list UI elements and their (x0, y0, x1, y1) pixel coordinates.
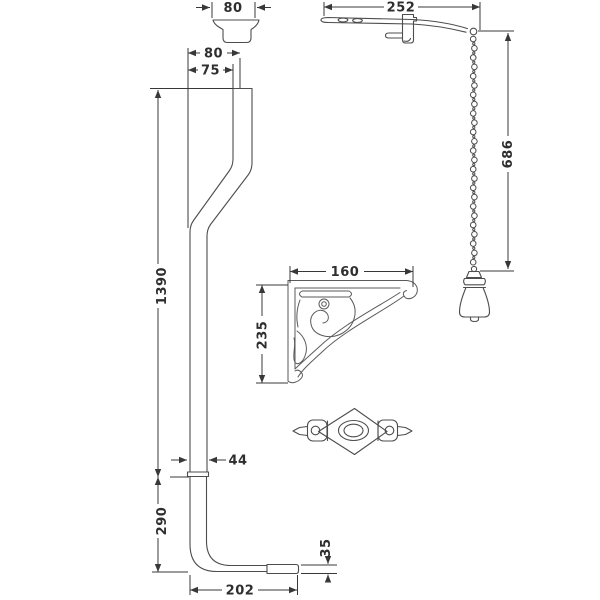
diamond-escutcheon-plate (293, 409, 412, 455)
cistern-cone-connector (213, 20, 259, 43)
dim-connector-width: 80 (196, 1, 271, 18)
flush-pipe (188, 89, 299, 574)
dim-pipe-offset-inner: 75 (188, 64, 233, 89)
dim-label-pipe-diameter: 44 (228, 454, 247, 469)
dim-label-bottom-run: 202 (226, 584, 255, 599)
dim-label-bracket-width: 160 (331, 265, 360, 280)
dim-label-pipe-upper-length: 1390 (155, 267, 170, 305)
dim-label-bracket-height: 235 (256, 321, 271, 350)
dim-label-outlet-height: 35 (319, 538, 334, 557)
pipe-coupling (188, 472, 209, 477)
ornate-wall-bracket (288, 281, 417, 383)
dim-label-connector-width: 80 (223, 1, 242, 16)
pull-chain (470, 36, 477, 265)
dim-pipe-diameter: 44 (171, 454, 248, 469)
lever-hole (338, 18, 348, 22)
dim-outlet-height: 35 (301, 538, 337, 582)
dim-label-lever-length: 252 (387, 1, 416, 16)
pipe-outlet-coupling (267, 565, 299, 574)
dim-bottom-run: 202 (190, 575, 298, 599)
dim-label-chain-length: 686 (501, 140, 516, 169)
dim-label-pipe-offset-inner: 75 (201, 64, 220, 79)
lever-tip-pivot (470, 28, 477, 35)
ceramic-pull-handle (460, 266, 490, 321)
drawing-canvas: 80 252 686 80 75 1390 2 (0, 0, 600, 600)
dim-chain-length: 686 (478, 31, 516, 271)
dim-pipe-lower-length: 290 (155, 477, 170, 572)
technical-drawing-page: 80 252 686 80 75 1390 2 (0, 0, 600, 600)
dim-label-pipe-lower-length: 290 (155, 507, 170, 536)
dim-bracket-width: 160 (290, 265, 413, 287)
clamp-thumbscrew (386, 33, 403, 38)
dim-label-pipe-offset-outer: 80 (204, 47, 223, 62)
lever-hole (353, 19, 363, 23)
flush-lever-arm (321, 15, 477, 44)
dim-bracket-height: 235 (256, 285, 289, 383)
dim-pipe-upper-length: 1390 (155, 90, 170, 477)
